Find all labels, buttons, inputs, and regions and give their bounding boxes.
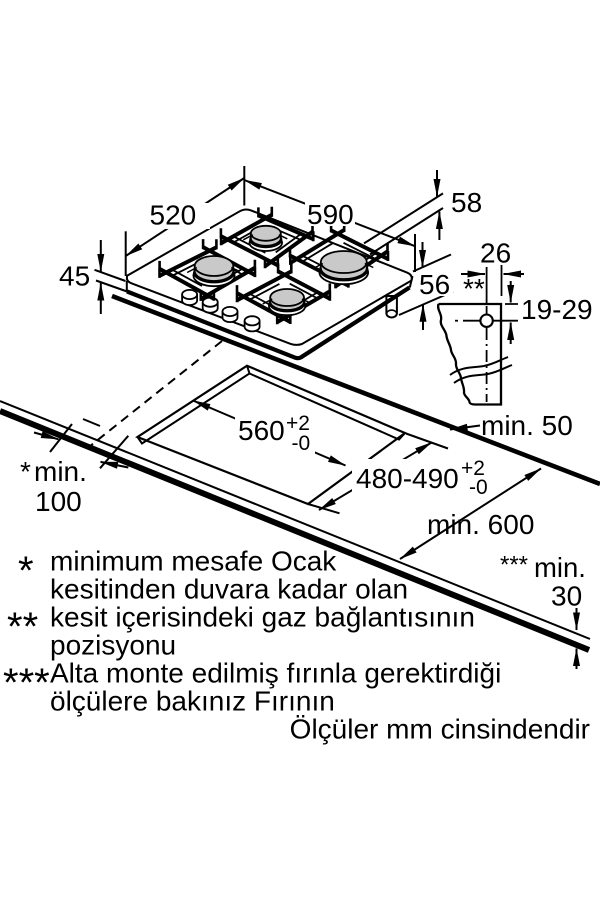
svg-text:45: 45 xyxy=(59,261,90,292)
svg-text:-0: -0 xyxy=(292,432,311,455)
svg-text:520: 520 xyxy=(150,200,197,231)
svg-text:ölçülere bakınız Fırının: ölçülere bakınız Fırının xyxy=(50,686,335,717)
svg-text:minimum mesafe Ocak: minimum mesafe Ocak xyxy=(50,546,337,577)
svg-text:58: 58 xyxy=(451,187,482,218)
svg-text:pozisyonu: pozisyonu xyxy=(50,630,176,661)
svg-text:***: *** xyxy=(500,552,528,579)
svg-text:**: ** xyxy=(463,273,485,304)
svg-text:*: * xyxy=(20,456,31,487)
svg-text:***: *** xyxy=(3,661,50,705)
svg-text:kesit içerisindeki gaz bağlant: kesit içerisindeki gaz bağlantısının xyxy=(50,602,475,633)
svg-text:56: 56 xyxy=(419,269,450,300)
svg-text:min. 600: min. 600 xyxy=(427,509,534,540)
svg-text:30: 30 xyxy=(551,581,582,612)
svg-text:*: * xyxy=(18,549,34,593)
svg-text:480-490: 480-490 xyxy=(356,463,459,494)
svg-text:min.: min. xyxy=(34,456,87,487)
svg-text:560: 560 xyxy=(238,415,285,446)
svg-text:-0: -0 xyxy=(469,476,488,499)
svg-text:590: 590 xyxy=(307,199,354,230)
svg-text:Alta monte edilmiş fırınla ger: Alta monte edilmiş fırınla gerektirdiği xyxy=(50,658,501,689)
svg-text:100: 100 xyxy=(35,486,82,517)
svg-text:**: ** xyxy=(7,605,38,649)
svg-text:26: 26 xyxy=(480,238,511,269)
svg-text:kesitinden duvara kadar olan: kesitinden duvara kadar olan xyxy=(50,574,408,605)
svg-text:min.: min. xyxy=(534,552,586,583)
svg-text:Ölçüler mm cinsindendir: Ölçüler mm cinsindendir xyxy=(290,714,590,745)
svg-text:19-29: 19-29 xyxy=(521,294,593,325)
svg-text:min. 50: min. 50 xyxy=(481,410,573,441)
